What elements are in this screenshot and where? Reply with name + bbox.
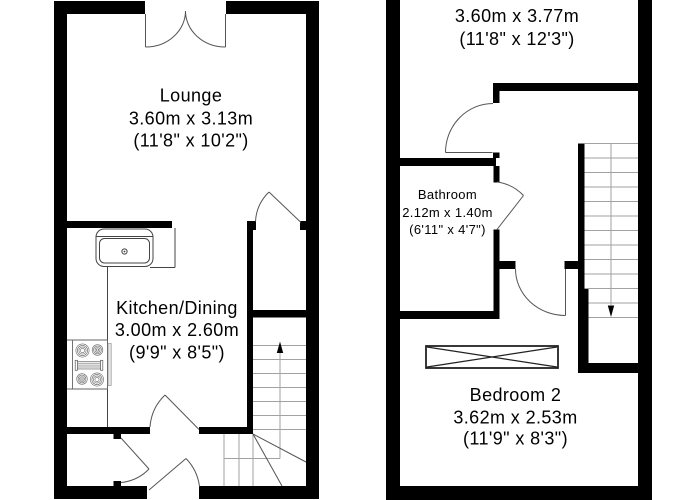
svg-text:Kitchen/Dining: Kitchen/Dining — [116, 298, 238, 318]
svg-text:Bathroom: Bathroom — [418, 187, 477, 202]
svg-text:(11'8" x 12'3"): (11'8" x 12'3") — [459, 29, 574, 49]
svg-text:3.60m x 3.77m: 3.60m x 3.77m — [455, 6, 579, 26]
svg-text:Lounge: Lounge — [160, 86, 222, 106]
svg-text:3.62m x 2.53m: 3.62m x 2.53m — [453, 408, 577, 428]
svg-text:(6'11" x 4'7"): (6'11" x 4'7") — [409, 222, 486, 237]
svg-text:(11'9" x 8'3"): (11'9" x 8'3") — [463, 429, 568, 449]
svg-text:Bedroom 2: Bedroom 2 — [470, 385, 562, 405]
svg-text:(9'9" x 8'5"): (9'9" x 8'5") — [129, 343, 225, 363]
svg-text:3.00m x 2.60m: 3.00m x 2.60m — [115, 320, 239, 340]
svg-text:3.60m x 3.13m: 3.60m x 3.13m — [129, 109, 253, 129]
svg-text:2.12m x 1.40m: 2.12m x 1.40m — [402, 205, 493, 220]
svg-text:(11'8" x 10'2"): (11'8" x 10'2") — [133, 131, 248, 151]
